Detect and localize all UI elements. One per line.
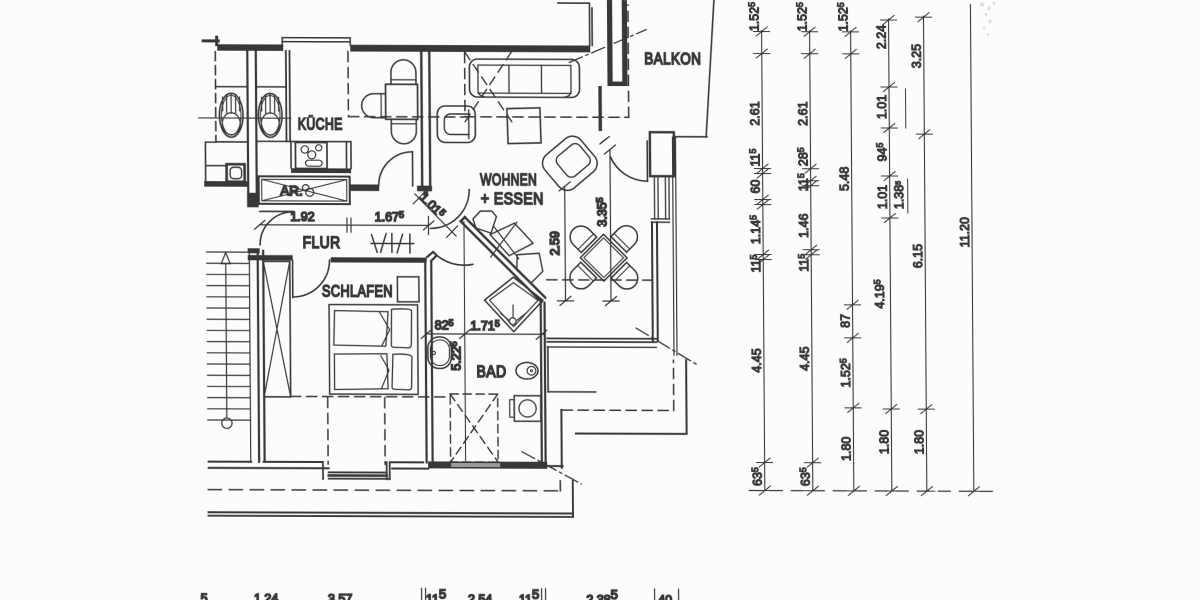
- svg-text:60: 60: [749, 180, 763, 194]
- svg-text:1.385: 1.385: [892, 181, 906, 209]
- svg-text:1.80: 1.80: [839, 437, 853, 461]
- svg-text:1.24: 1.24: [254, 592, 278, 600]
- svg-text:AR.: AR.: [280, 183, 303, 198]
- svg-text:BAD: BAD: [476, 362, 506, 381]
- svg-text:87: 87: [839, 314, 853, 328]
- svg-text:3.57: 3.57: [328, 592, 352, 600]
- svg-text:2.54: 2.54: [468, 593, 492, 600]
- svg-text:2.61: 2.61: [796, 101, 810, 125]
- svg-text:5.48: 5.48: [838, 167, 852, 191]
- svg-text:BALKON: BALKON: [644, 49, 701, 68]
- svg-text:2.61: 2.61: [748, 101, 762, 125]
- svg-text:1.92: 1.92: [290, 210, 314, 224]
- svg-text:+ ESSEN: + ESSEN: [481, 189, 544, 208]
- svg-text:4.45: 4.45: [750, 348, 764, 372]
- svg-text:5: 5: [201, 592, 208, 600]
- svg-text:11.20: 11.20: [958, 217, 972, 247]
- svg-text:1.80: 1.80: [877, 430, 891, 454]
- svg-text:SCHLAFEN: SCHLAFEN: [322, 282, 393, 301]
- svg-text:KÜCHE: KÜCHE: [298, 114, 343, 133]
- svg-text:WOHNEN: WOHNEN: [480, 170, 537, 189]
- svg-text:1.80: 1.80: [912, 430, 926, 454]
- svg-text:1.46: 1.46: [797, 213, 811, 237]
- svg-text:6.15: 6.15: [911, 244, 925, 268]
- svg-text:40: 40: [658, 593, 672, 600]
- svg-text:1.01: 1.01: [875, 95, 889, 119]
- svg-text:4.45: 4.45: [798, 346, 812, 370]
- svg-text:2.24: 2.24: [875, 25, 889, 49]
- svg-text:1.01: 1.01: [876, 185, 890, 209]
- svg-text:2.59: 2.59: [548, 231, 562, 255]
- svg-text:FLUR: FLUR: [303, 233, 341, 252]
- svg-text:3.25: 3.25: [910, 44, 924, 68]
